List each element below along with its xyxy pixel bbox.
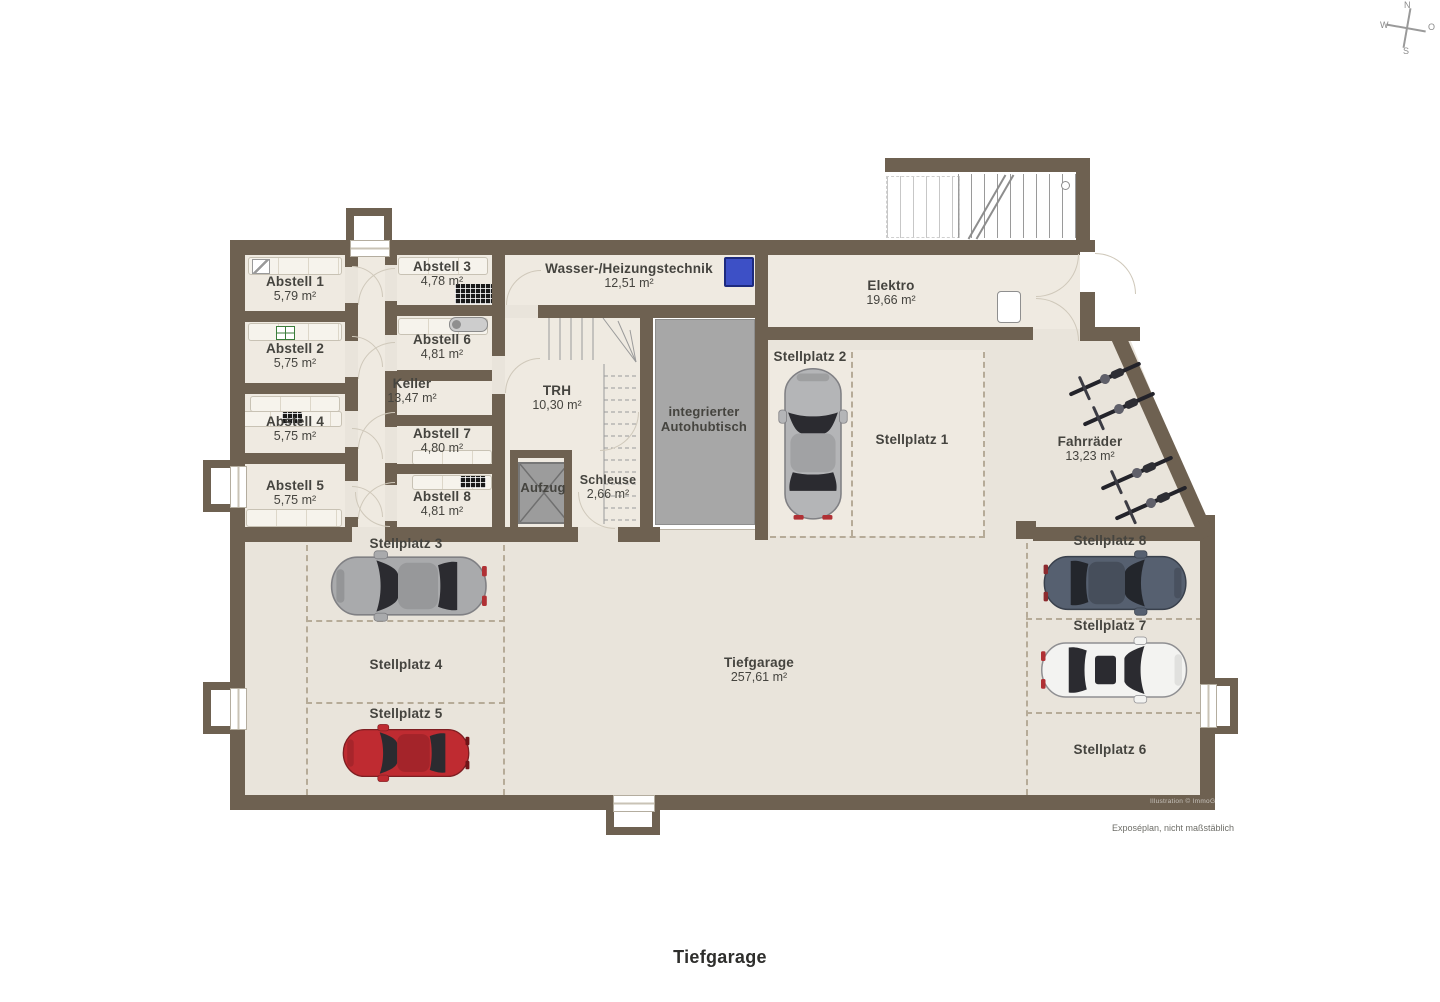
wall [768,327,1033,340]
bottle-crate-icon [460,476,486,488]
watermark: Illustration © ImmoGrafik [1150,798,1229,805]
compass-s: S [1403,46,1409,56]
shelf [250,396,340,412]
compass-icon: N O S W [1372,0,1438,60]
parking-divider [306,702,505,704]
window [1200,684,1217,728]
door-opening [492,356,505,394]
wall [230,795,1215,810]
wall [385,305,492,316]
door-opening [578,527,618,542]
parking-divider [1026,712,1202,714]
room-label-keller: Keller13,47 m² [387,376,436,405]
parking-divider [1026,543,1028,795]
room-label-schleuse: Schleuse2,66 m² [580,473,637,501]
parking-divider [851,352,853,536]
compass-e: O [1428,22,1435,32]
wall [640,305,653,540]
wall [237,453,345,464]
elektro-floor [768,255,1080,329]
room-label-aufzug: Aufzug [520,481,565,496]
wall [1200,515,1215,810]
wall [510,450,518,527]
exterior-staircase-dashed-treads [886,176,960,238]
parking-divider [306,545,308,795]
electric-meter-icon [997,291,1021,323]
wall [385,464,492,474]
vacuum-cleaner-icon [449,317,488,332]
wall [510,450,572,458]
door-opening [505,305,538,318]
wall [755,247,768,540]
room-label-trh: TRH10,30 m² [532,383,581,412]
room-label-abstell-5: Abstell 55,75 m² [266,478,324,507]
parking-divider [983,352,985,536]
car-icon-stellplatz-8 [1040,550,1188,616]
wall [237,383,345,394]
room-label-abstell-8: Abstell 84,81 m² [413,489,471,518]
car-icon-stellplatz-3 [327,550,493,622]
parking-label-stellplatz-3: Stellplatz 3 [370,536,443,551]
boiler-icon [724,257,754,287]
parking-label-stellplatz-5: Stellplatz 5 [370,706,443,721]
laundry-icon [252,259,270,274]
wall [538,305,768,318]
parking-divider [770,536,985,538]
stair-newel [1061,181,1070,190]
parking-label-stellplatz-6: Stellplatz 6 [1074,742,1147,757]
parking-label-stellplatz-7: Stellplatz 7 [1074,618,1147,633]
wall [1080,327,1140,341]
wall [885,158,1090,172]
floor-plan-page: Abstell 15,79 m² Abstell 25,75 m² Abstel… [0,0,1440,1002]
room-label-wasser-heizungstechnik: Wasser-/Heizungstechnik12,51 m² [545,261,713,290]
window [613,795,655,812]
car-icon-stellplatz-7 [1038,632,1188,708]
room-label-abstell-7: Abstell 74,80 m² [413,426,471,455]
window [230,466,247,508]
window [350,240,390,257]
room-label-autohubtisch: integrierterAutohubtisch [661,405,747,434]
parking-label-stellplatz-1: Stellplatz 1 [876,432,949,447]
room-label-abstell-3: Abstell 34,78 m² [413,259,471,288]
parking-label-stellplatz-4: Stellplatz 4 [370,657,443,672]
entrance-door-opening [1080,252,1095,292]
compass-n: N [1404,0,1411,10]
room-label-abstell-2: Abstell 25,75 m² [266,341,324,370]
wall [1076,158,1090,250]
room-label-abstell-4: Abstell 45,75 m² [266,414,324,443]
crate-icon [276,326,295,340]
disclaimer-text: Exposéplan, nicht maßstäblich [1112,823,1234,833]
car-icon-stellplatz-5 [342,718,472,788]
car-icon-stellplatz-2 [778,363,848,527]
room-label-elektro: Elektro19,66 m² [866,278,915,307]
shelf [246,509,342,527]
parking-label-stellplatz-8: Stellplatz 8 [1074,533,1147,548]
wall [1016,521,1036,539]
shelf [248,323,342,341]
wall [385,415,492,426]
room-label-tiefgarage: Tiefgarage257,61 m² [724,655,794,684]
wall [237,311,345,322]
door-swing-arc [1095,253,1136,294]
parking-divider [503,545,505,795]
window [230,688,247,730]
page-title: Tiefgarage [0,947,1440,968]
room-label-abstell-1: Abstell 15,79 m² [266,274,324,303]
room-label-abstell-6: Abstell 64,81 m² [413,332,471,361]
room-label-fahrraeder: Fahrräder13,23 m² [1058,434,1123,463]
parking-label-stellplatz-2: Stellplatz 2 [774,349,847,364]
compass-w: W [1380,20,1389,30]
